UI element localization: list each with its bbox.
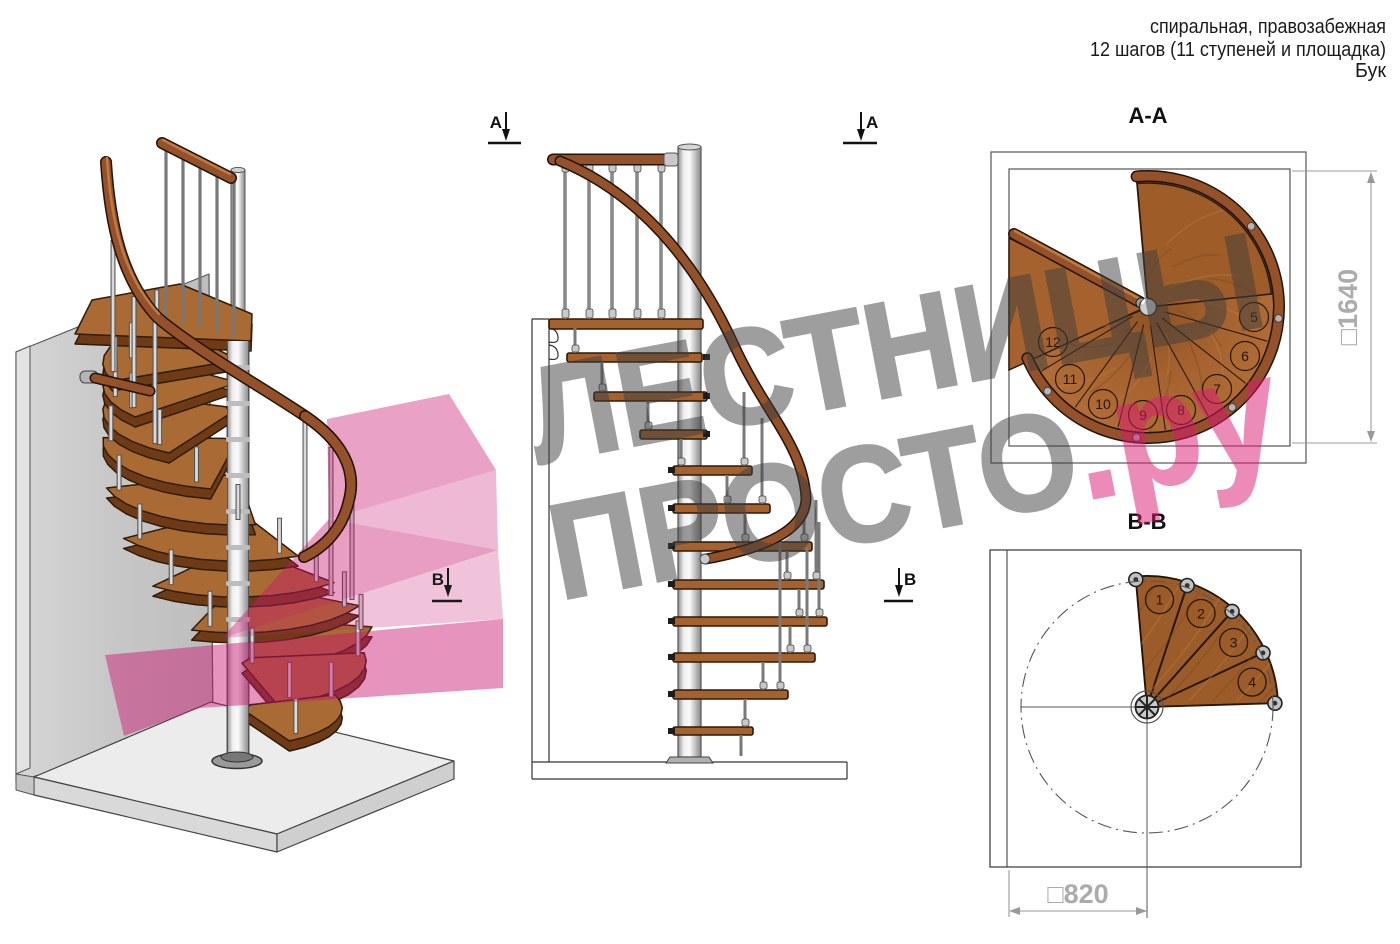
svg-text:Бук: Бук xyxy=(1355,60,1386,82)
svg-text:2: 2 xyxy=(1197,606,1205,622)
svg-text:A: A xyxy=(866,113,878,132)
svg-text:4: 4 xyxy=(1248,674,1256,690)
svg-text:B: B xyxy=(432,570,444,589)
svg-text:B: B xyxy=(904,570,916,589)
svg-text:□820: □820 xyxy=(1047,879,1108,909)
svg-text:12 шагов (11 ступеней и площад: 12 шагов (11 ступеней и площадка) xyxy=(1090,39,1386,61)
svg-text:□1640: □1640 xyxy=(1333,269,1363,345)
svg-text:3: 3 xyxy=(1230,635,1238,651)
svg-text:A: A xyxy=(490,113,502,132)
svg-text:1: 1 xyxy=(1156,592,1164,608)
svg-text:А-А: А-А xyxy=(1128,103,1167,128)
svg-text:спиральная, правозабежная: спиральная, правозабежная xyxy=(1150,16,1386,38)
